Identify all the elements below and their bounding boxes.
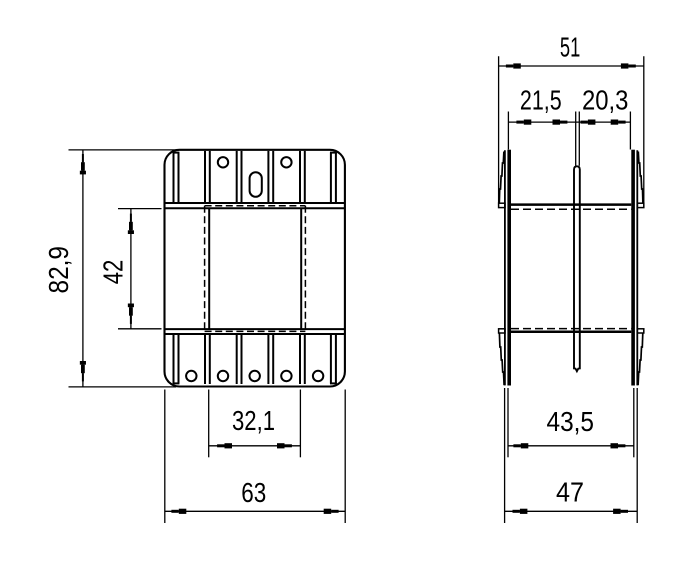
- svg-text:63: 63: [241, 477, 266, 508]
- svg-text:20,3: 20,3: [582, 84, 628, 115]
- svg-text:21,5: 21,5: [520, 84, 562, 115]
- svg-text:42: 42: [97, 260, 128, 285]
- svg-text:51: 51: [560, 31, 580, 62]
- svg-text:32,1: 32,1: [232, 405, 275, 436]
- svg-text:43,5: 43,5: [547, 406, 595, 437]
- svg-text:82,9: 82,9: [43, 246, 74, 294]
- svg-text:47: 47: [556, 477, 584, 508]
